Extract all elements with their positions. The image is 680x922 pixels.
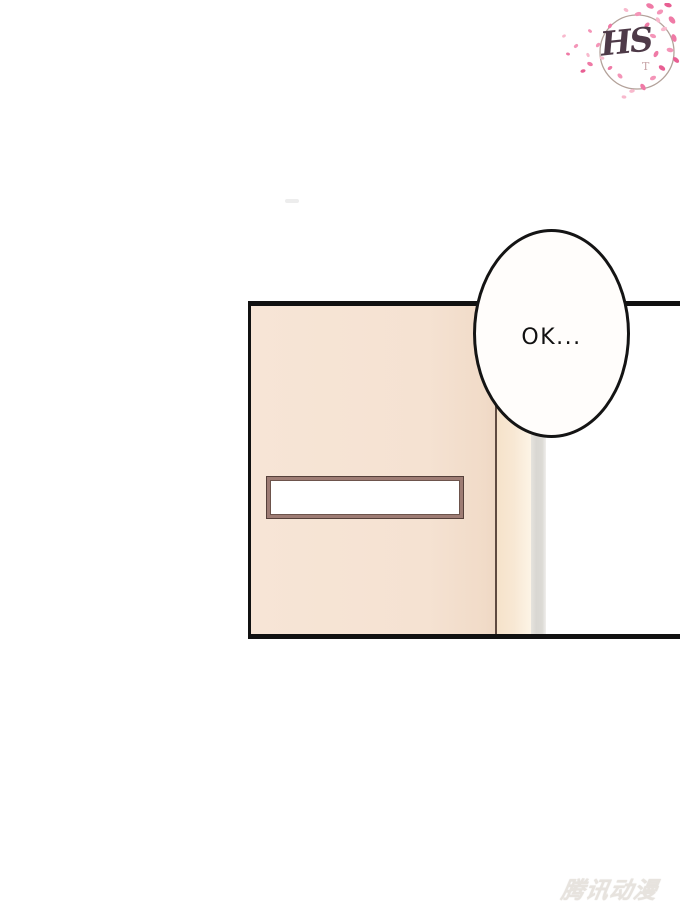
stray-smudge-mark	[285, 199, 299, 203]
door-name-plate-blank	[271, 481, 459, 514]
door	[251, 306, 495, 634]
publisher-logo: HS T	[558, 3, 680, 107]
comic-page: HS T OK... 腾讯动漫	[0, 0, 680, 922]
speech-bubble-text: OK...	[521, 325, 581, 350]
door-name-plate	[266, 476, 464, 519]
door-name-plate-inner	[270, 480, 460, 515]
speech-bubble: OK...	[473, 229, 630, 438]
publisher-watermark: 腾讯动漫	[559, 871, 661, 905]
logo-subscript-text: T	[642, 60, 649, 73]
